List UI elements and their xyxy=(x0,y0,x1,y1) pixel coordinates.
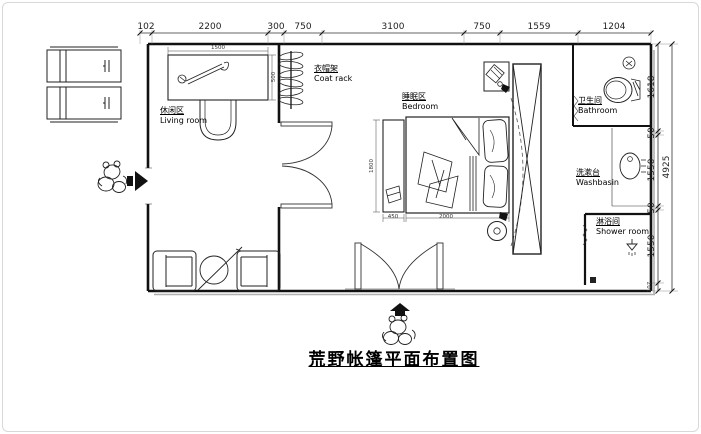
dim-desk-width: 1500 xyxy=(211,45,225,51)
bathroom-label-zh: 卫生间 xyxy=(578,96,617,106)
dim-top-2: 2200 xyxy=(199,22,222,32)
dim-right-1: 1618 xyxy=(647,76,657,99)
shower-head-icon xyxy=(627,239,637,256)
desk xyxy=(168,55,268,100)
shower-room-label: 淋浴间 Shower room xyxy=(596,217,649,237)
dim-right-4: 50 xyxy=(647,202,657,213)
entry-person-bottom xyxy=(382,315,415,345)
exhaust-fan-icon xyxy=(623,57,635,69)
drawing-title: 荒野帐篷平面布置图 xyxy=(309,345,480,370)
dim-top-6: 750 xyxy=(473,22,490,32)
entry-arrow-bottom xyxy=(390,303,410,316)
dim-top-7: 1559 xyxy=(528,22,551,32)
dim-bench-width: 450 xyxy=(388,214,399,220)
shower-room-label-en: Shower room xyxy=(596,227,649,237)
dim-top-5: 3100 xyxy=(382,22,405,32)
partition-double-door xyxy=(281,122,332,208)
bedroom-label-zh: 睡眠区 xyxy=(402,92,438,102)
coat-rack-label-zh: 衣帽架 xyxy=(314,64,352,74)
bed-bench xyxy=(383,120,404,212)
double-bed xyxy=(406,117,509,213)
dim-desk-depth: 500 xyxy=(271,72,277,83)
dim-right-total: 4925 xyxy=(662,156,672,179)
entry-person-left xyxy=(98,161,127,193)
coat-rack-label-en: Coat rack xyxy=(314,74,352,84)
french-doors xyxy=(345,243,455,289)
bedroom-label-en: Bedroom xyxy=(402,102,438,112)
bed-hooks xyxy=(499,84,510,221)
nightstand-stool xyxy=(488,222,507,241)
dim-bed-length: 1800 xyxy=(369,159,375,173)
bedroom-label: 睡眠区 Bedroom xyxy=(402,92,438,112)
living-room-label-en: Living room xyxy=(160,116,207,126)
washbasin-label-zh: 洗漱台 xyxy=(576,168,619,178)
round-table xyxy=(198,247,242,290)
wall-details xyxy=(145,96,650,245)
living-room-label-zh: 休闲区 xyxy=(160,106,207,116)
dim-right-5: 1550 xyxy=(647,235,657,258)
washbasin-sink xyxy=(620,153,646,179)
sunbed-bottom xyxy=(47,87,121,122)
dim-top-3: 300 xyxy=(267,22,284,32)
entry-arrow-left xyxy=(127,171,148,191)
wardrobe xyxy=(513,64,541,254)
dim-bed-width: 2000 xyxy=(439,214,453,220)
bathroom-label-en: Bathroom xyxy=(578,106,617,116)
bathroom-label: 卫生间 Bathroom xyxy=(578,96,617,116)
shower-room-label-zh: 淋浴间 xyxy=(596,217,649,227)
coat-rack xyxy=(279,51,304,109)
dim-top-4: 750 xyxy=(294,22,311,32)
washbasin-label-en: Washbasin xyxy=(576,178,619,188)
dim-right-3: 1550 xyxy=(647,159,657,182)
armchair-left xyxy=(153,251,196,291)
floorplan-page: 102 2200 300 750 3100 750 1559 1204 1618… xyxy=(0,0,701,434)
coat-rack-label: 衣帽架 Coat rack xyxy=(314,64,352,84)
living-room-label: 休闲区 Living room xyxy=(160,106,207,126)
dim-right-6: 107 xyxy=(647,282,653,293)
dim-top-8: 1204 xyxy=(603,22,626,32)
dim-right-2: 50 xyxy=(647,127,657,138)
floor-drain xyxy=(590,277,596,283)
dim-top-1: 102 xyxy=(137,22,154,32)
sunbed-top xyxy=(47,47,121,82)
washbasin-label: 洗漱台 Washbasin xyxy=(576,168,619,188)
armchair-right xyxy=(237,251,280,291)
